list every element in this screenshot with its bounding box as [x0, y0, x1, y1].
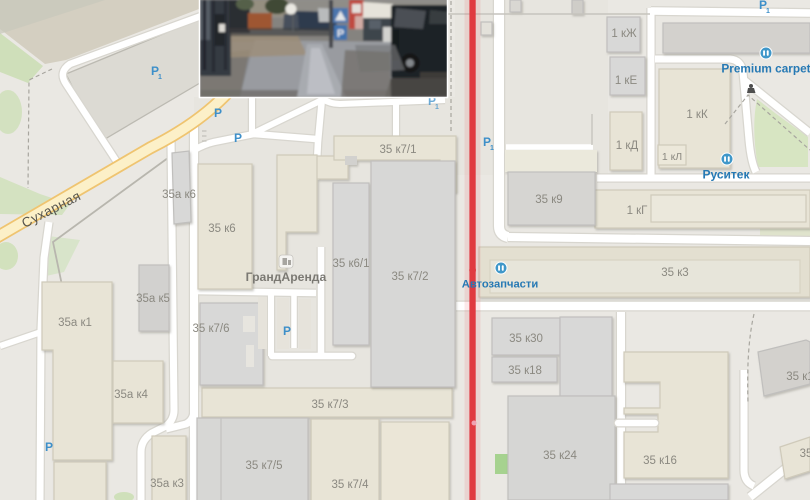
svg-text:1 кД: 1 кД — [616, 140, 639, 152]
svg-text:1: 1 — [158, 74, 162, 81]
svg-text:P: P — [214, 106, 222, 120]
svg-text:35 к30: 35 к30 — [509, 333, 543, 345]
svg-text:35 к7/4: 35 к7/4 — [331, 479, 369, 491]
svg-text:1 кЕ: 1 кЕ — [615, 75, 638, 87]
svg-text:P: P — [234, 131, 242, 145]
svg-text:35а к3: 35а к3 — [150, 478, 184, 490]
svg-text:Premium carpet: Premium carpet — [721, 62, 810, 76]
svg-text:35а к5: 35а к5 — [136, 293, 170, 305]
svg-text:35 к7/5: 35 к7/5 — [245, 460, 282, 472]
svg-text:Автозапчасти: Автозапчасти — [462, 279, 539, 291]
svg-text:35 к7/3: 35 к7/3 — [311, 399, 348, 411]
svg-text:35 к6/1: 35 к6/1 — [332, 258, 369, 270]
svg-text:1: 1 — [490, 145, 494, 152]
svg-text:1 кГ: 1 кГ — [627, 205, 649, 217]
svg-text:35 к1: 35 к1 — [786, 371, 810, 383]
svg-text:35 к3: 35 к3 — [661, 267, 688, 279]
svg-text:P: P — [45, 440, 53, 454]
svg-text:35а к1: 35а к1 — [58, 317, 92, 329]
svg-text:35 к16: 35 к16 — [643, 455, 677, 467]
svg-text:ГрандАренда: ГрандАренда — [246, 270, 327, 284]
svg-text:35а к4: 35а к4 — [114, 389, 148, 401]
svg-text:1: 1 — [435, 104, 439, 111]
svg-text:35 к24: 35 к24 — [543, 450, 577, 462]
svg-text:35 к7/6: 35 к7/6 — [192, 323, 229, 335]
svg-text:1 кЛ: 1 кЛ — [662, 151, 682, 163]
svg-text:1 кЖ: 1 кЖ — [611, 28, 637, 40]
svg-text:P: P — [337, 28, 344, 40]
svg-text:P: P — [283, 324, 291, 338]
svg-text:1 кК: 1 кК — [686, 109, 708, 121]
svg-text:Руситек: Руситек — [703, 168, 751, 182]
svg-text:35 к18: 35 к18 — [508, 365, 542, 377]
svg-text:35а к6: 35а к6 — [162, 189, 196, 201]
svg-text:35 к7/1: 35 к7/1 — [379, 144, 416, 156]
svg-text:35 к9: 35 к9 — [535, 194, 562, 206]
svg-text:35 к7/2: 35 к7/2 — [391, 271, 428, 283]
svg-text:35: 35 — [800, 448, 810, 460]
svg-text:35 к6: 35 к6 — [208, 223, 235, 235]
svg-text:1: 1 — [766, 8, 770, 15]
